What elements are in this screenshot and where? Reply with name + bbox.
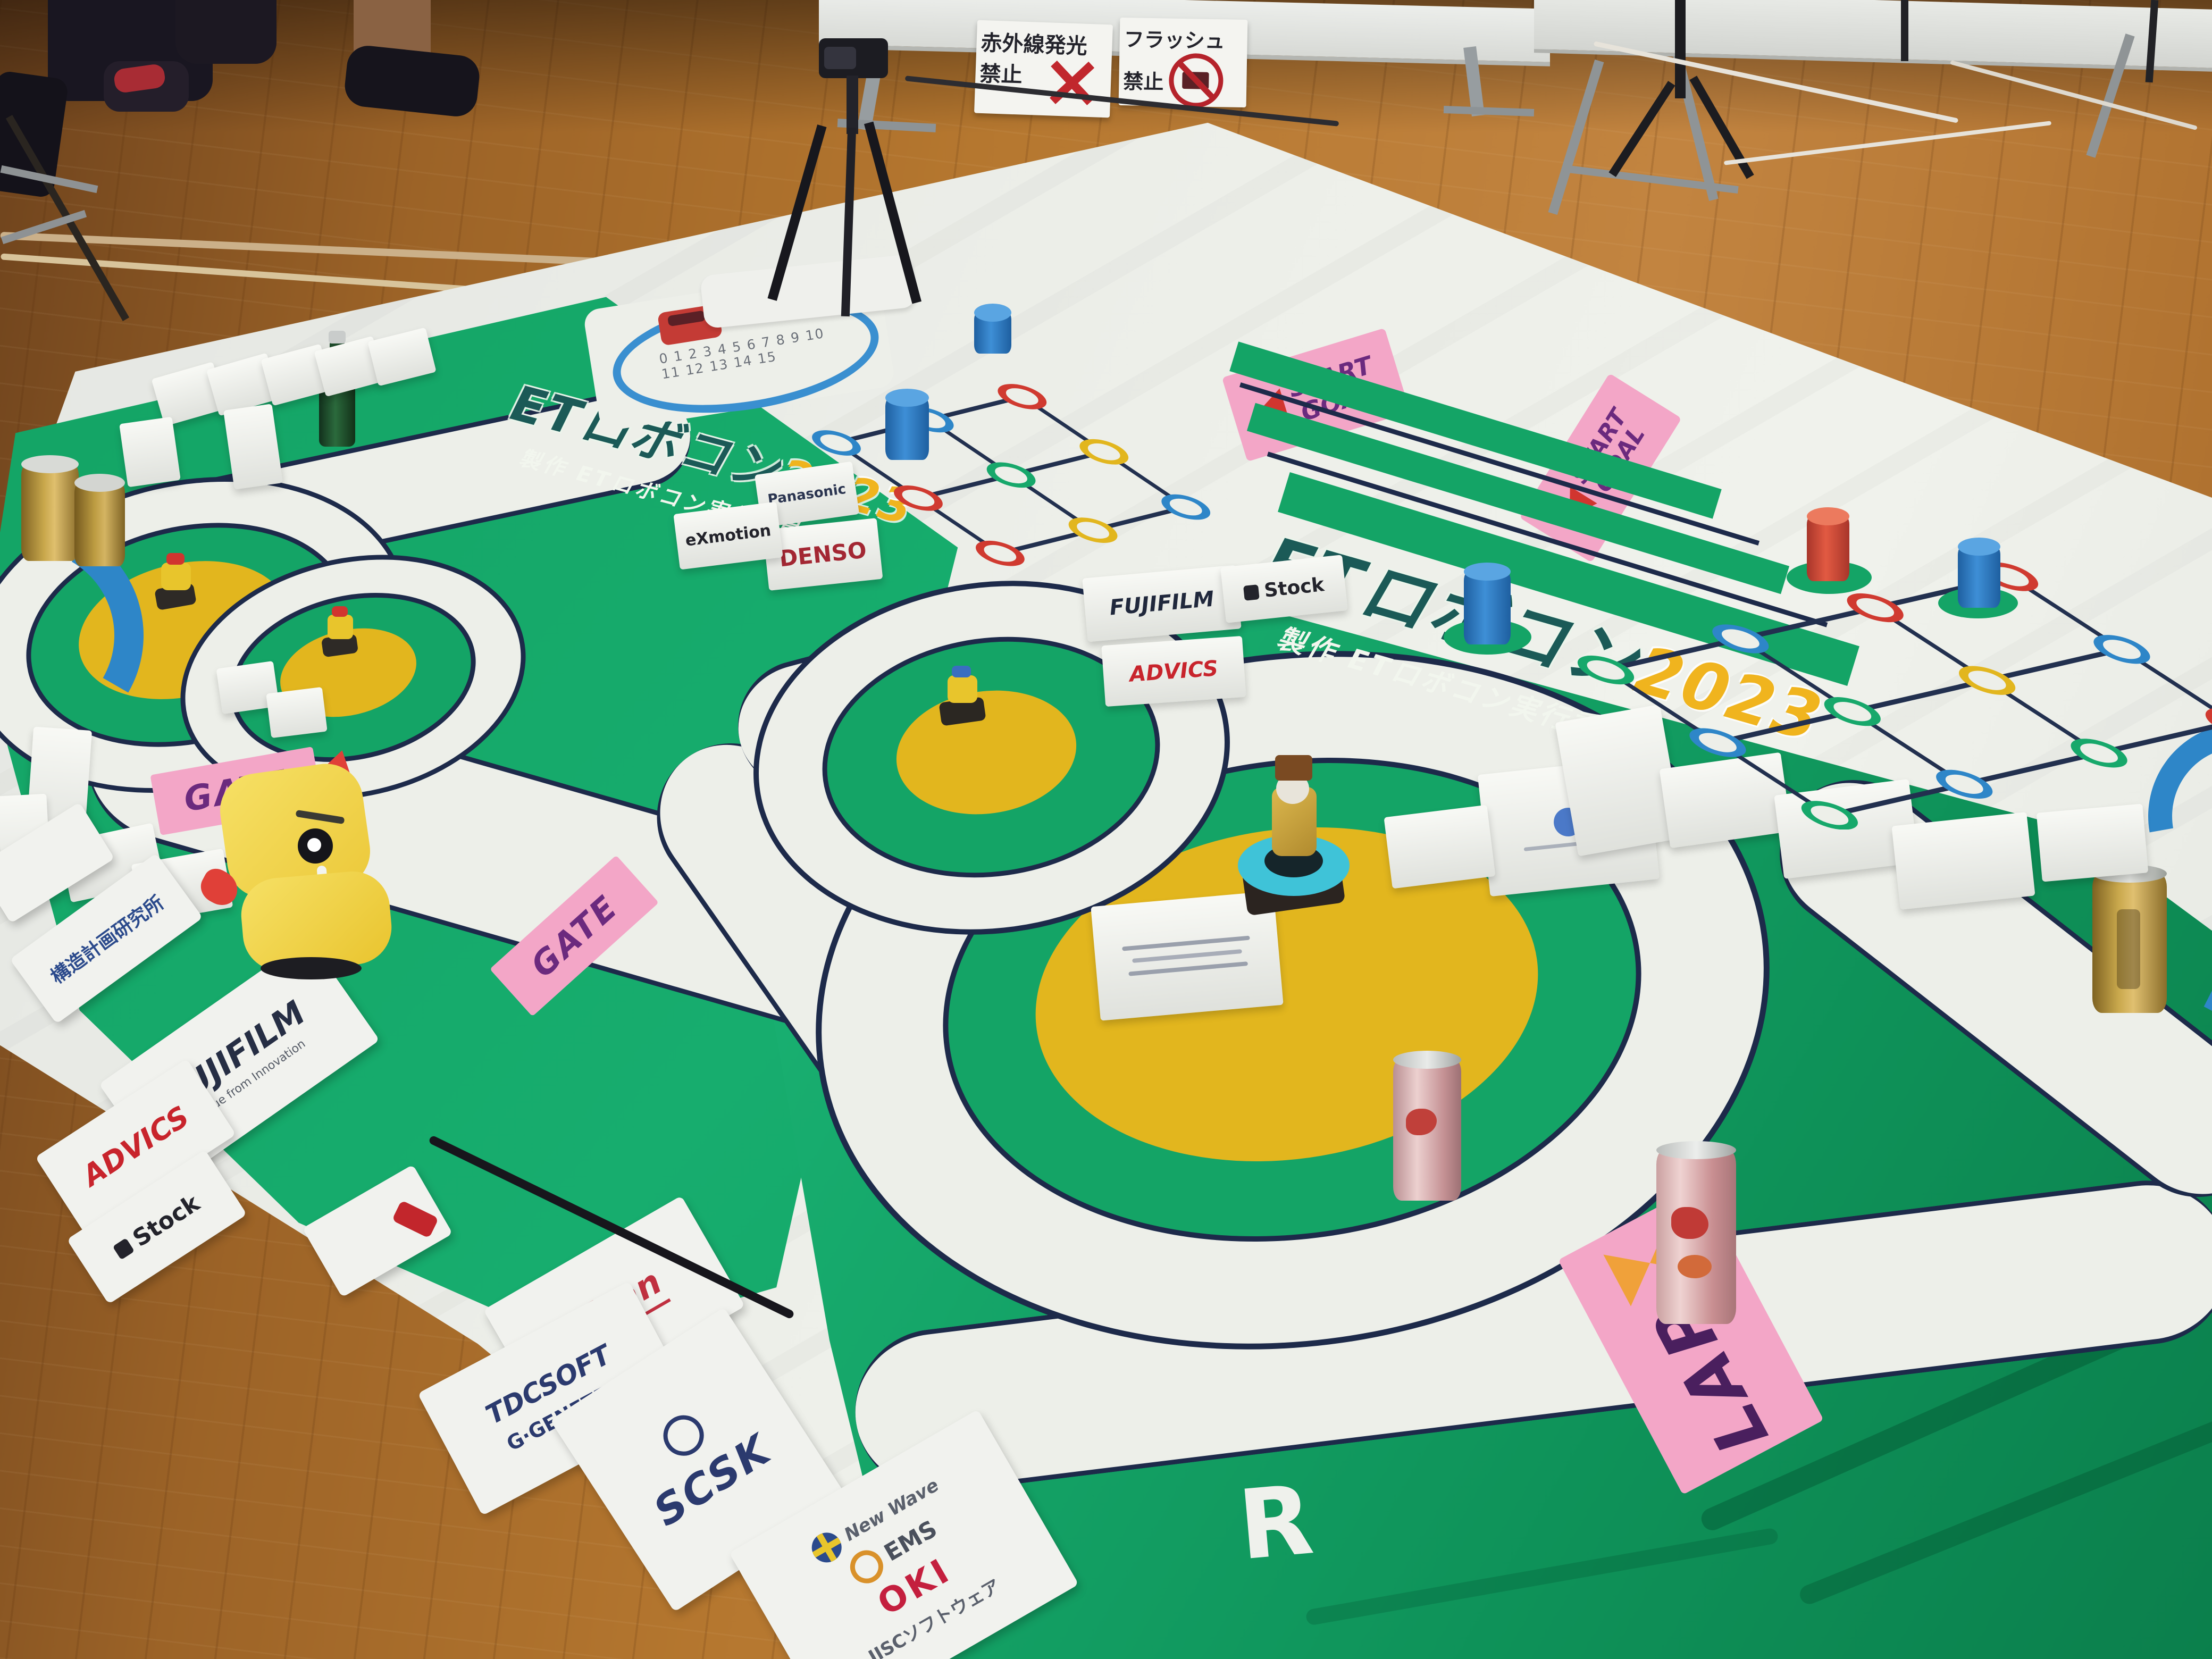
right-card-6 (1384, 805, 1496, 889)
robot-left-big-island (152, 553, 199, 611)
section-r-label: R (1234, 1464, 1317, 1581)
no-flash-line2: 禁止 (1123, 65, 1164, 95)
no-flash-sign: フラッシュ 禁止 (1119, 18, 1248, 107)
advics-card-label: ADVICS (1129, 656, 1219, 687)
robot-right-small-island (936, 665, 989, 728)
peach-can (1393, 1058, 1461, 1201)
no-infrared-sign: 赤外線発光 禁止 (974, 20, 1113, 118)
newwave-globe-icon (806, 1527, 847, 1568)
mini-card-9 (266, 687, 327, 738)
robot-right-big-island (1223, 755, 1361, 904)
blue-cylinder-left-1 (885, 396, 929, 460)
tent-card-advics: ADVICS (1101, 636, 1246, 707)
spectator-blob (175, 0, 276, 64)
chick-mascot (191, 744, 415, 978)
green-bottle-cap (329, 331, 346, 343)
scsk-globe-icon (656, 1407, 711, 1463)
camera-lens (824, 47, 856, 69)
lap-can (1656, 1149, 1736, 1324)
mic-stand-pole (1675, 0, 1686, 98)
no-infrared-line1: 赤外線発光 (981, 26, 1109, 61)
stock-banner-label: Stock (128, 1189, 205, 1252)
mini-card-7 (119, 417, 181, 488)
blue-cylinder-right-1 (1464, 570, 1511, 644)
chick-base-shadow (261, 957, 362, 979)
tripod-leg-3 (841, 128, 856, 316)
chick-eye (298, 828, 333, 864)
stock-square-icon (1243, 584, 1260, 601)
tripod-leg-2 (864, 122, 921, 304)
tripod-leg-1 (767, 124, 826, 301)
gold-can-left-1 (21, 463, 79, 561)
stand-pole-2 (1901, 0, 1908, 61)
stock-card-label: Stock (1263, 574, 1325, 602)
fujifilm-card-label: FUJIFILM (1109, 587, 1215, 621)
gym-scene: 赤外線発光 禁止 フラッシュ 禁止 (0, 0, 2212, 1659)
stock-banner-square-icon (112, 1238, 134, 1260)
red-cylinder-right (1807, 515, 1849, 581)
exmotion-label: eXmotion (684, 521, 772, 550)
block-grid-left (774, 274, 1252, 577)
gold-can-right (2092, 872, 2167, 1013)
robot-left-small-island (319, 606, 362, 659)
no-flash-icon (1169, 53, 1224, 108)
red-x-icon (1043, 55, 1098, 110)
blue-cup-left-top (974, 311, 1011, 354)
gold-can-left-2 (74, 481, 125, 566)
blue-cylinder-right-2 (1958, 545, 2000, 608)
camera-tripod (755, 27, 957, 314)
no-flash-line1: フラッシュ (1124, 23, 1243, 54)
tripod-column (847, 76, 858, 134)
block-grid-right (1526, 457, 2212, 829)
